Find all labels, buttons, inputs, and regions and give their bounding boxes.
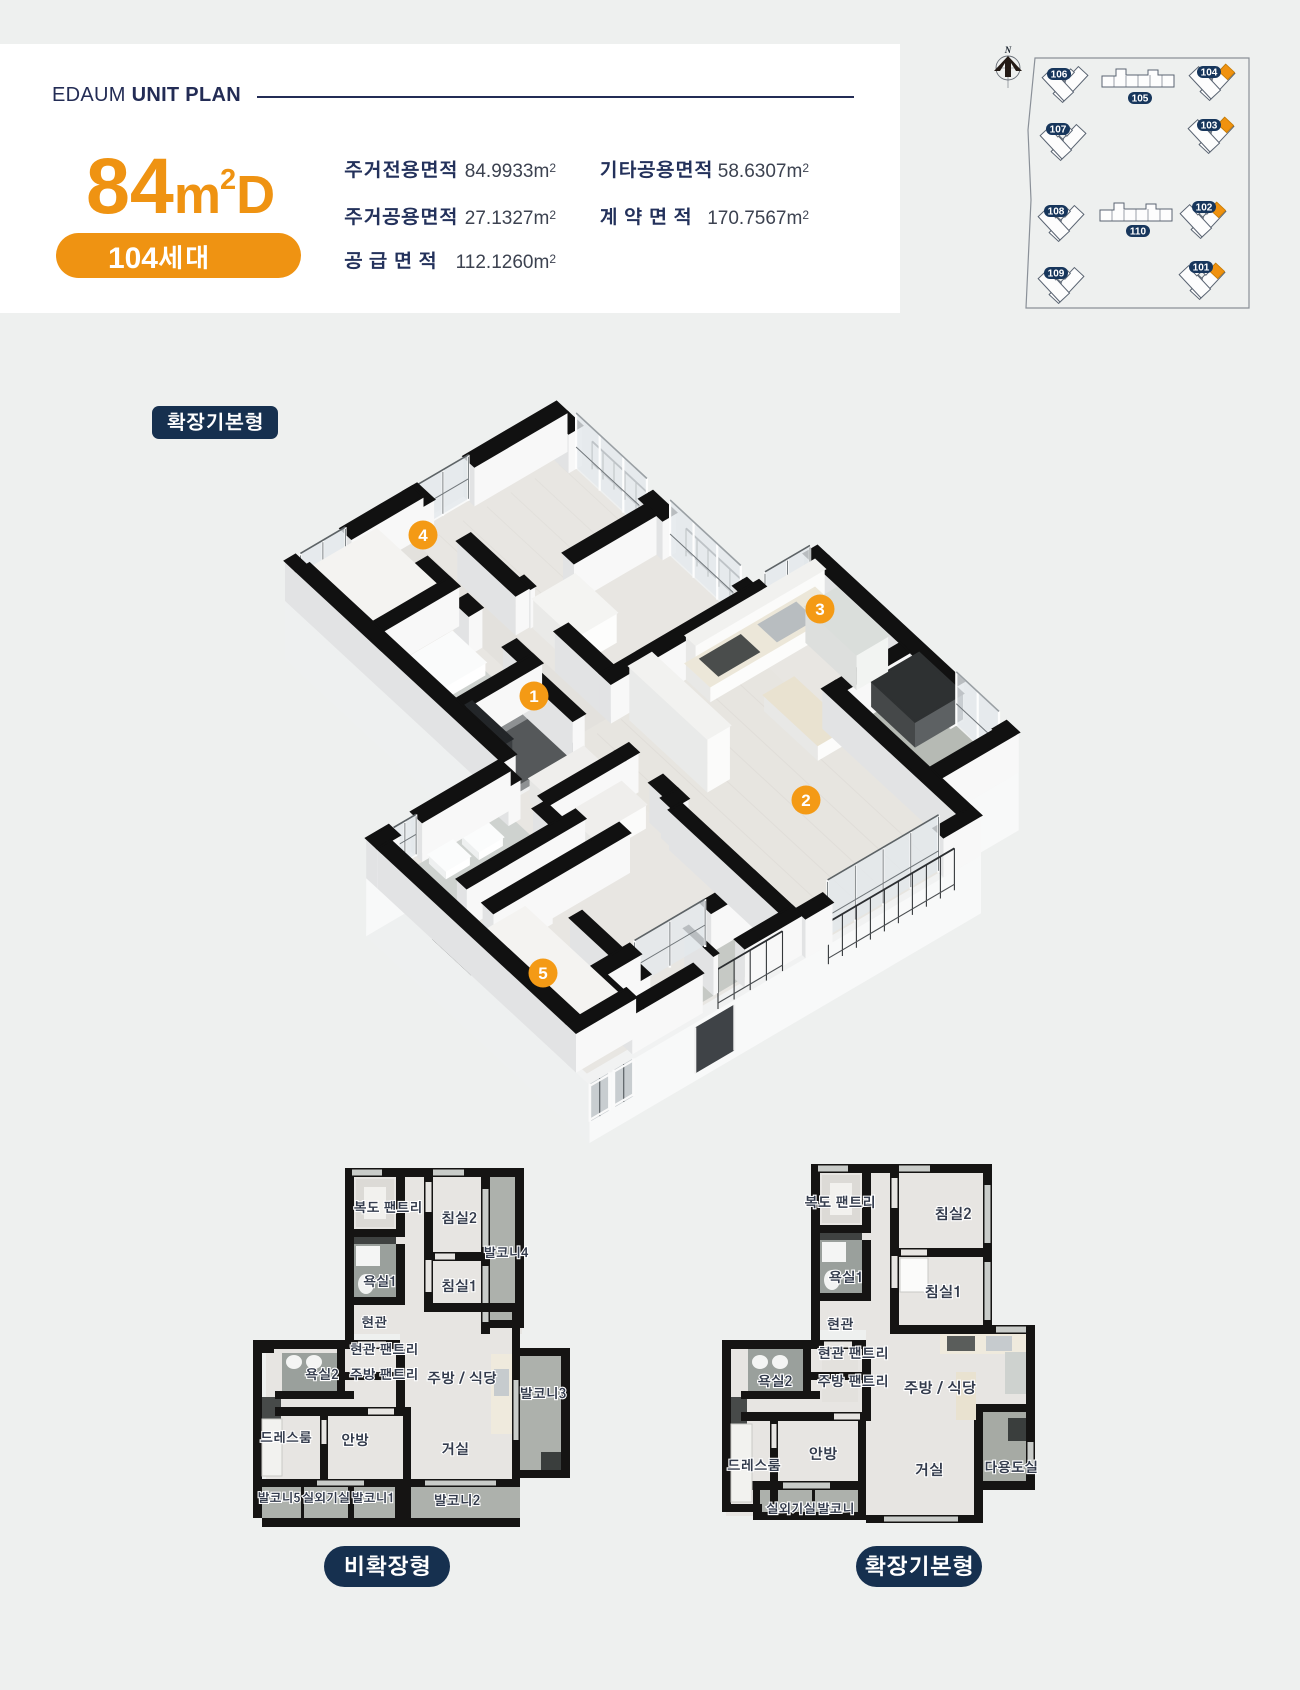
svg-text:110: 110 [1130, 226, 1147, 237]
svg-text:2: 2 [801, 791, 810, 810]
svg-text:105: 105 [1132, 93, 1149, 104]
svg-text:102: 102 [1196, 202, 1213, 213]
svg-text:107: 107 [1050, 124, 1067, 135]
svg-text:104: 104 [1201, 67, 1218, 78]
svg-text:3: 3 [815, 600, 824, 619]
svg-text:N: N [1004, 45, 1012, 55]
svg-text:5: 5 [538, 964, 547, 983]
svg-text:103: 103 [1201, 120, 1218, 131]
svg-text:106: 106 [1051, 69, 1068, 80]
svg-text:104: 104 [108, 242, 158, 275]
svg-text:101: 101 [1193, 262, 1210, 273]
svg-text:108: 108 [1048, 206, 1065, 217]
svg-text:109: 109 [1048, 268, 1065, 279]
svg-text:1: 1 [529, 687, 538, 706]
svg-text:4: 4 [418, 526, 428, 545]
